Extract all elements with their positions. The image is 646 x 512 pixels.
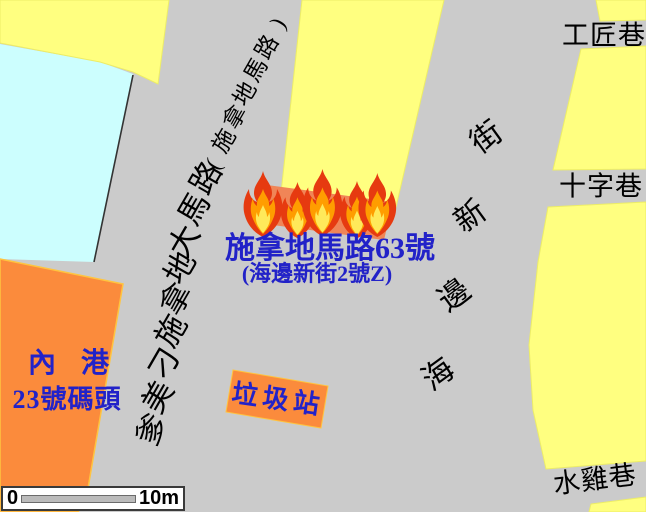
alley-label-shizi: 十字巷 [559, 174, 643, 201]
pier-name-label: 內 港 [28, 350, 118, 378]
scale-zero-label: 0 [7, 487, 18, 510]
pier-number-label: 23號碼頭 [12, 387, 121, 413]
alley-label-gongjiang: 工匠巷 [562, 23, 646, 50]
street-map: 爹美刁施拿地大馬路(施拿地馬路)海邊新街 施拿地馬路63號 (海邊新街2號Z) … [0, 0, 646, 512]
scale-bar-line [21, 495, 136, 503]
incident-subtitle-label: (海邊新街2號Z) [242, 263, 392, 285]
incident-title-label: 施拿地馬路63號 [225, 234, 435, 264]
scale-max-label: 10m [139, 487, 179, 510]
building-ne-corner [596, 0, 646, 21]
building-east-main [529, 202, 646, 469]
scale-bar: 0 10m [1, 486, 185, 511]
